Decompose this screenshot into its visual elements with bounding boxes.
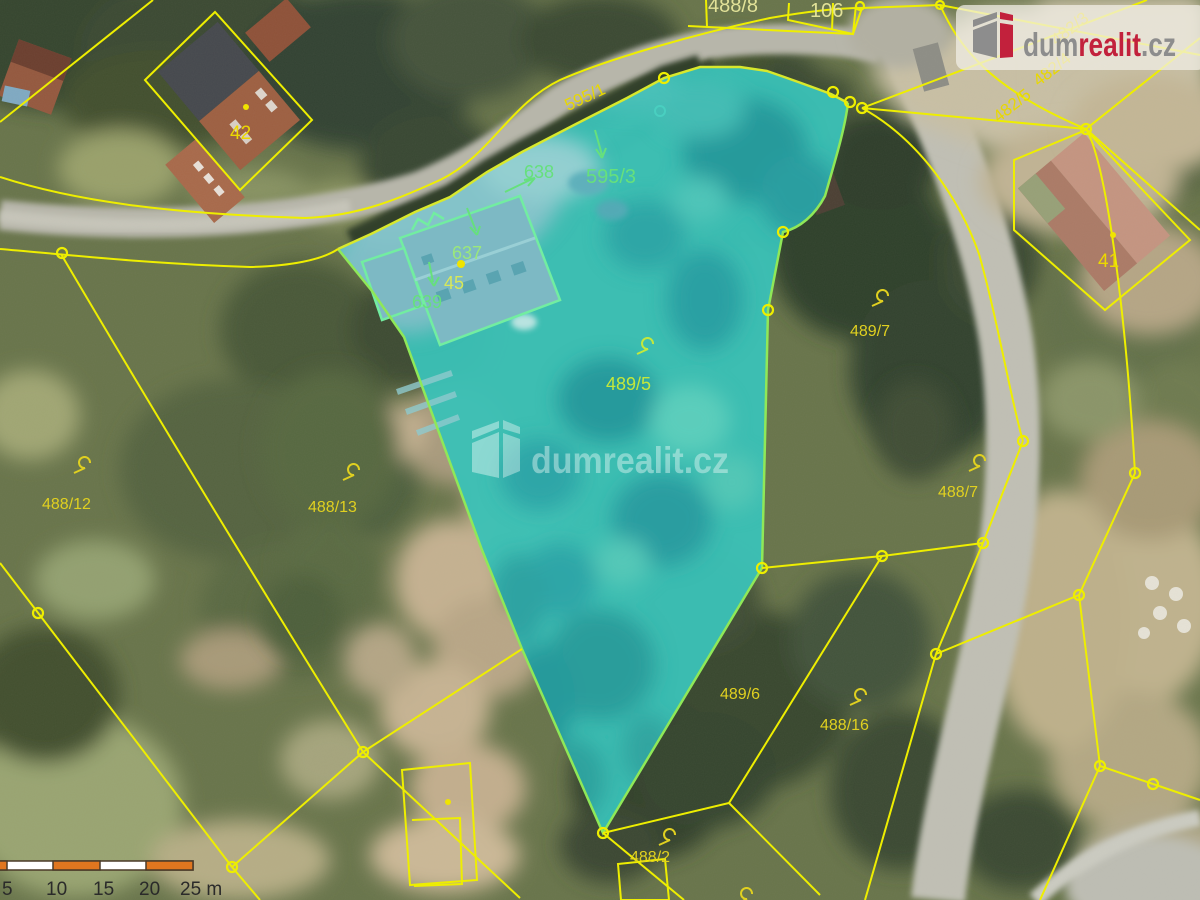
svg-text:10: 10	[46, 879, 67, 900]
svg-text:639: 639	[412, 292, 442, 312]
svg-text:488/7: 488/7	[938, 484, 978, 501]
svg-text:637: 637	[452, 243, 482, 263]
svg-text:488/8: 488/8	[708, 0, 758, 17]
svg-text:489/7: 489/7	[850, 323, 890, 340]
svg-text:15: 15	[93, 879, 114, 900]
svg-text:106: 106	[810, 0, 843, 22]
svg-text:5: 5	[2, 879, 13, 900]
svg-text:25 m: 25 m	[180, 879, 222, 900]
svg-text:489/6: 489/6	[720, 686, 760, 703]
svg-text:488/2: 488/2	[630, 849, 670, 866]
svg-text:489/5: 489/5	[606, 374, 651, 394]
svg-text:488/12: 488/12	[42, 496, 91, 513]
svg-text:595/3: 595/3	[586, 166, 636, 188]
svg-text:20: 20	[139, 879, 160, 900]
svg-text:45: 45	[444, 273, 464, 293]
svg-text:488/16: 488/16	[820, 717, 869, 734]
svg-text:dumrealit.cz: dumrealit.cz	[1023, 26, 1176, 63]
svg-text:41: 41	[1098, 251, 1119, 272]
svg-text:488/13: 488/13	[308, 499, 357, 516]
svg-text:42: 42	[230, 123, 251, 144]
svg-text:dumrealit.cz: dumrealit.cz	[531, 440, 729, 481]
